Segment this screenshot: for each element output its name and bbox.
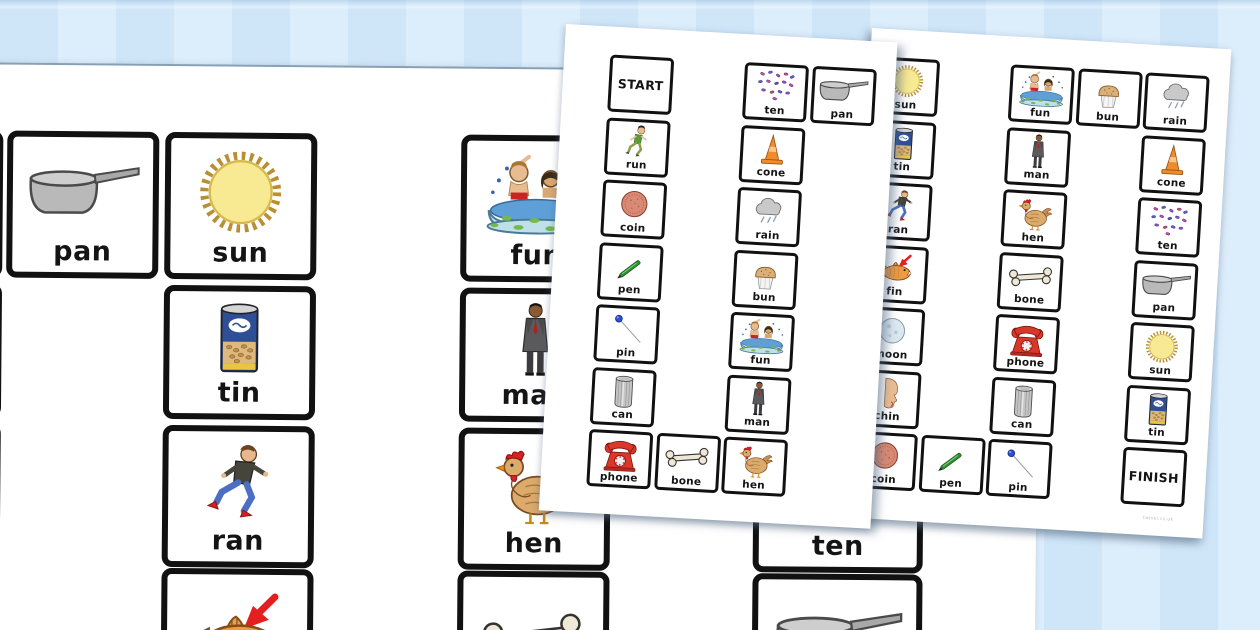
cell-label: ten: [764, 104, 785, 118]
board-cell-pin: pin: [593, 304, 660, 364]
rain-icon: [741, 190, 798, 231]
cell-label: ran: [888, 223, 909, 237]
board-cell-sun: sun: [1128, 322, 1195, 383]
phone-icon: [592, 432, 649, 473]
bun-icon: [737, 253, 794, 294]
cell-label: bone: [1014, 293, 1045, 308]
can-icon: [995, 380, 1052, 421]
sun-icon: [175, 138, 307, 238]
board-cell-coin: coin: [600, 179, 667, 239]
cell-label: bun: [752, 291, 776, 305]
can-icon: [595, 370, 652, 411]
fun-icon: [1013, 68, 1070, 109]
board-cell-hen: hen: [1000, 189, 1067, 250]
ran-icon: [172, 431, 304, 526]
board-cell-can: can: [989, 376, 1056, 437]
pen-icon: [924, 438, 981, 479]
board-cell-can: can: [590, 367, 657, 427]
cell-label: coin: [620, 221, 646, 235]
cell-label: pen: [617, 284, 640, 298]
cell-label: chin: [874, 410, 900, 425]
pin-icon: [599, 307, 656, 348]
cell-label: tin: [217, 377, 260, 413]
board-cell-man: man: [725, 374, 792, 434]
board-cell-man: man: [1004, 127, 1071, 188]
pan-icon: [17, 137, 149, 237]
cell-label: pin: [616, 346, 636, 360]
board-cell-fin: fin: [160, 568, 313, 630]
board-cell-pen: pen: [597, 242, 664, 302]
board-cell-bone: bone: [456, 571, 609, 630]
cell-label: ten: [812, 531, 864, 567]
board-cell-cone: cone: [738, 124, 805, 184]
pan-icon: [762, 579, 911, 630]
cell-label: fin: [886, 286, 903, 300]
board-cell-empty: [0, 422, 1, 565]
board-cell-phone: phone: [586, 429, 653, 489]
pan-icon: [1137, 263, 1194, 304]
cell-label: sun: [1149, 364, 1172, 378]
cell-label: tin: [893, 161, 910, 175]
board-cell-fun: fun: [728, 312, 795, 372]
bone-icon: [467, 577, 600, 630]
tin-icon: [173, 291, 305, 378]
board-cell-rain: rain: [1142, 72, 1209, 133]
cell-label: rain: [755, 229, 780, 243]
fin-icon: [171, 574, 304, 630]
fun-icon: [734, 315, 791, 356]
cell-label: phone: [1006, 356, 1045, 371]
hen-icon: [727, 440, 784, 481]
cell-label: sun: [894, 98, 917, 112]
cell-label: hen: [742, 479, 765, 493]
board-page-1: STARTruncoinpenpincanphonebonehentencone…: [539, 24, 898, 529]
cell-label: hen: [505, 528, 564, 565]
board-cell-pan: pan: [809, 66, 876, 126]
board-page-2: suntinranfinmoonchincoinpenpinfunmanhenb…: [843, 28, 1231, 538]
board-cell-bun: bun: [732, 249, 799, 309]
board-cell-start: START: [607, 55, 674, 115]
board-cell-empty: [0, 129, 3, 277]
run-icon: [609, 120, 666, 161]
cell-label: START: [617, 76, 664, 94]
cell-label: pin: [1008, 481, 1028, 495]
cell-label: pen: [939, 477, 962, 491]
coin-icon: [606, 183, 663, 224]
cell-label: ten: [1157, 239, 1178, 253]
board-cell-bone: bone: [654, 433, 721, 493]
phone-icon: [999, 317, 1056, 358]
cell-label: phone: [599, 471, 637, 486]
cell-label: fun: [1030, 106, 1051, 120]
cell-label: cone: [1156, 177, 1186, 192]
board-cell-pin: pin: [985, 439, 1052, 500]
ten-icon: [748, 65, 805, 106]
watermark: twinkl.co.uk: [1143, 516, 1174, 523]
cell-label: FINISH: [1128, 468, 1179, 486]
cone-icon: [1144, 138, 1201, 179]
board-cell-rain: rain: [735, 187, 802, 247]
cell-label: sun: [212, 237, 268, 274]
cell-label: rain: [1163, 114, 1188, 128]
man-icon: [1010, 130, 1067, 171]
cell-label: cone: [756, 166, 786, 181]
board-cell-ten: ten: [1135, 197, 1202, 258]
background-top-shade: [0, 0, 1260, 10]
board-cell-ran: ran: [162, 425, 315, 568]
cell-label: pan: [1152, 302, 1175, 316]
board-cell-tin: tin: [1124, 384, 1191, 445]
board-cell-pan: pan: [1131, 259, 1198, 320]
board-cell-bun: bun: [1075, 68, 1142, 129]
cell-label: man: [1023, 169, 1050, 184]
cell-label: hen: [1021, 231, 1044, 245]
board-cell-tin: tin: [163, 285, 316, 420]
cone-icon: [744, 128, 801, 169]
board-cell-bone: bone: [997, 251, 1064, 312]
cell-label: pan: [53, 236, 112, 273]
cell-label: run: [625, 159, 646, 173]
board-cell-finish: FINISH: [1120, 447, 1187, 508]
board-cell-run: run: [604, 117, 671, 177]
cell-label: can: [611, 409, 633, 423]
pin-icon: [991, 442, 1048, 483]
cell-label: ran: [212, 525, 265, 562]
worksheet-preview-scene: pansuntinranfinfunmanhenbonetenpan sunti…: [0, 0, 1260, 630]
pen-icon: [602, 245, 659, 286]
rain-icon: [1148, 76, 1205, 117]
cell-label: fun: [750, 354, 771, 368]
bun-icon: [1081, 72, 1138, 113]
hen-icon: [1006, 192, 1063, 233]
cell-label: can: [1011, 418, 1033, 432]
man-icon: [730, 377, 787, 418]
cell-label: coin: [870, 473, 896, 488]
board-cell-cone: cone: [1139, 135, 1206, 196]
board-cell-pan: pan: [6, 131, 159, 279]
cell-label: tin: [1148, 427, 1165, 441]
ten-icon: [1141, 200, 1198, 241]
board-cell-pen: pen: [918, 435, 985, 496]
sun-icon: [1133, 325, 1190, 366]
bone-icon: [1002, 255, 1059, 296]
cell-label: man: [744, 416, 771, 430]
board-cell-ten: ten: [742, 62, 809, 122]
board-cell-phone: phone: [993, 314, 1060, 375]
bone-icon: [659, 436, 716, 477]
page-2-board-grid: suntinranfinmoonchincoinpenpinfunmanhenb…: [872, 28, 1231, 49]
cell-label: bun: [1096, 110, 1120, 124]
board-cell-empty: [0, 282, 2, 417]
board-cell-sun: sun: [164, 132, 317, 280]
tin-icon: [1130, 388, 1187, 429]
board-cell-pan: pan: [751, 573, 922, 630]
page-1-board-grid: STARTruncoinpenpincanphonebonehentencone…: [566, 24, 897, 43]
board-cell-hen: hen: [721, 436, 788, 496]
cell-label: bone: [671, 475, 702, 490]
pan-icon: [815, 69, 872, 110]
board-cell-fun: fun: [1008, 64, 1075, 125]
cell-label: pan: [830, 108, 853, 122]
